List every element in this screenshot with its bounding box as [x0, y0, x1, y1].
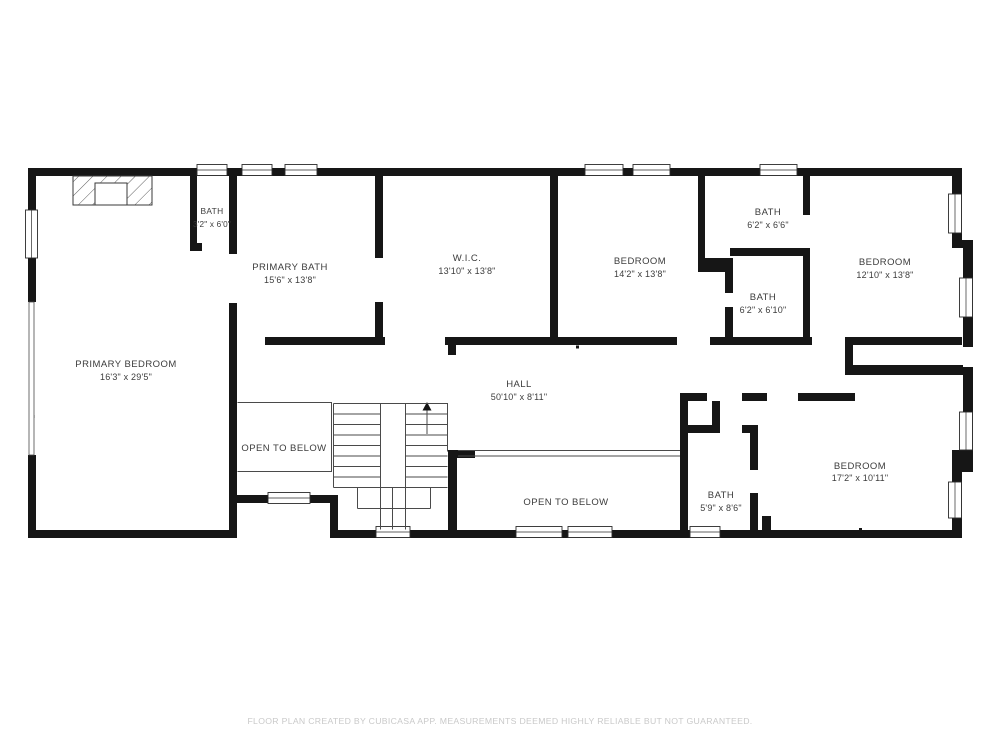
wall-left	[28, 455, 36, 538]
windows-layer	[26, 165, 973, 538]
room-label-primary-bath: PRIMARY BATH 15'6" x 13'8"	[252, 262, 328, 285]
room-name: BEDROOM	[834, 461, 886, 472]
wall-corridor-stub	[712, 401, 720, 433]
wall-bath3-right	[750, 425, 758, 470]
window	[268, 493, 310, 504]
room-label-bath-3: BATH 5'9" x 8'6"	[700, 490, 742, 513]
room-dims: 3'2" x 6'0"	[193, 220, 231, 229]
fireplace-firebox	[95, 183, 127, 205]
footer-disclaimer: FLOOR PLAN CREATED BY CUBICASA APP. MEAS…	[247, 716, 752, 726]
window	[585, 165, 623, 176]
wall-bottom	[28, 530, 237, 538]
wall-primary-divider	[229, 303, 237, 538]
floor-plan-page: BATH 3'2" x 6'0" PRIMARY BATH 15'6" x 13…	[0, 0, 1000, 750]
window	[285, 165, 317, 176]
wall-stair-right	[448, 450, 457, 538]
floor-plan-drawing: BATH 3'2" x 6'0" PRIMARY BATH 15'6" x 13…	[0, 0, 1000, 750]
wall-bedroom2-left	[803, 248, 810, 345]
wall-connector	[330, 495, 338, 538]
wall-primary-divider	[229, 176, 237, 254]
wall-hall-north	[445, 337, 677, 345]
room-label-bedroom-1: BEDROOM 14'2" x 13'8"	[614, 256, 666, 279]
wall-wic-right	[550, 176, 558, 345]
fireplace	[73, 176, 152, 205]
wall-wic-left	[375, 176, 383, 258]
room-label-hall: HALL 50'10" x 8'11"	[491, 379, 548, 402]
room-dims: 15'6" x 13'8"	[264, 275, 316, 285]
wall-small-bath-bottom	[190, 243, 202, 251]
room-name: BATH	[708, 490, 734, 501]
room-dims: 5'9" x 8'6"	[700, 503, 742, 513]
wall-bedroom2-left	[803, 176, 810, 215]
tick-mark	[109, 170, 112, 173]
room-name: HALL	[506, 379, 532, 390]
room-label-open-to-below-bottom: OPEN TO BELOW	[523, 497, 608, 508]
wall-corridor	[680, 393, 707, 401]
room-name: BATH	[201, 206, 224, 216]
wall-bath-corner	[698, 258, 733, 272]
room-dims: 14'2" x 13'8"	[614, 269, 666, 279]
room-dims: 12'10" x 13'8"	[856, 270, 913, 280]
wall-bottom	[330, 530, 962, 538]
wall-stub	[448, 345, 456, 355]
tick-mark	[626, 338, 629, 341]
window	[760, 165, 797, 176]
room-name: BATH	[750, 292, 776, 303]
window	[197, 165, 227, 176]
room-label-open-to-below-left: OPEN TO BELOW	[241, 443, 326, 454]
tick-mark	[466, 339, 469, 342]
wall-bedroom-bath-divider	[698, 176, 705, 264]
window	[516, 527, 562, 538]
window	[960, 278, 973, 317]
open-to-below-outline	[238, 403, 332, 472]
room-label-primary-bedroom: PRIMARY BEDROOM 16'3" x 29'5"	[75, 359, 176, 382]
window	[949, 194, 962, 233]
tick-mark	[576, 346, 579, 349]
door-opening	[963, 347, 973, 367]
room-dims: 13'10" x 13'8"	[438, 266, 495, 276]
room-dims: 16'3" x 29'5"	[100, 372, 152, 382]
room-label-wic: W.I.C. 13'10" x 13'8"	[438, 253, 495, 276]
wall-corridor	[742, 393, 767, 401]
stairs	[334, 404, 448, 530]
wall-hall-north	[265, 337, 385, 345]
room-label-bath-small: BATH 3'2" x 6'0"	[193, 206, 231, 229]
open-to-below-railing	[458, 451, 680, 457]
window	[568, 527, 612, 538]
wall-left	[28, 176, 36, 210]
wall-bath3-right	[750, 493, 758, 538]
wall-hall-north	[710, 337, 812, 345]
window	[960, 412, 973, 450]
wall-bath2-left	[725, 272, 733, 293]
tick-mark	[859, 528, 862, 531]
wall-top	[28, 168, 962, 176]
wall-bedroom3-top	[798, 393, 855, 401]
window	[26, 210, 38, 258]
tick-mark	[767, 249, 770, 252]
room-name: BATH	[755, 207, 781, 218]
window	[242, 165, 272, 176]
room-name: PRIMARY BATH	[252, 262, 328, 273]
room-dims: 50'10" x 8'11"	[491, 392, 548, 402]
room-dims: 6'2" x 6'6"	[747, 220, 789, 230]
room-name: PRIMARY BEDROOM	[75, 359, 176, 370]
room-dims: 17'2" x 10'11"	[832, 473, 889, 483]
room-name: BEDROOM	[614, 256, 666, 267]
wall-small-bath-left	[190, 176, 197, 248]
room-label-bath-1: BATH 6'2" x 6'6"	[747, 207, 789, 230]
room-name: W.I.C.	[453, 253, 482, 264]
room-label-bedroom-2: BEDROOM 12'10" x 13'8"	[856, 257, 913, 280]
window	[690, 527, 720, 538]
room-label-bath-2: BATH 6'2" x 6'10"	[740, 292, 787, 315]
window	[949, 482, 962, 518]
wall-right-step	[952, 450, 973, 472]
room-label-bedroom-3: BEDROOM 17'2" x 10'11"	[832, 461, 889, 483]
wall-left	[28, 258, 36, 302]
wall-hall-north	[847, 337, 962, 345]
wall-bedroom3-nook	[845, 365, 973, 375]
room-name: BEDROOM	[859, 257, 911, 268]
wall-bottom-step	[762, 516, 771, 531]
room-dims: 6'2" x 6'10"	[740, 305, 787, 315]
window	[633, 165, 670, 176]
wall-open-area-right	[680, 393, 688, 538]
wall-bath3-top	[688, 425, 712, 433]
stairs-and-railings	[238, 403, 681, 530]
room-name: OPEN TO BELOW	[523, 497, 608, 508]
window-band	[29, 302, 34, 455]
tick-mark	[767, 338, 770, 341]
room-name: OPEN TO BELOW	[241, 443, 326, 454]
